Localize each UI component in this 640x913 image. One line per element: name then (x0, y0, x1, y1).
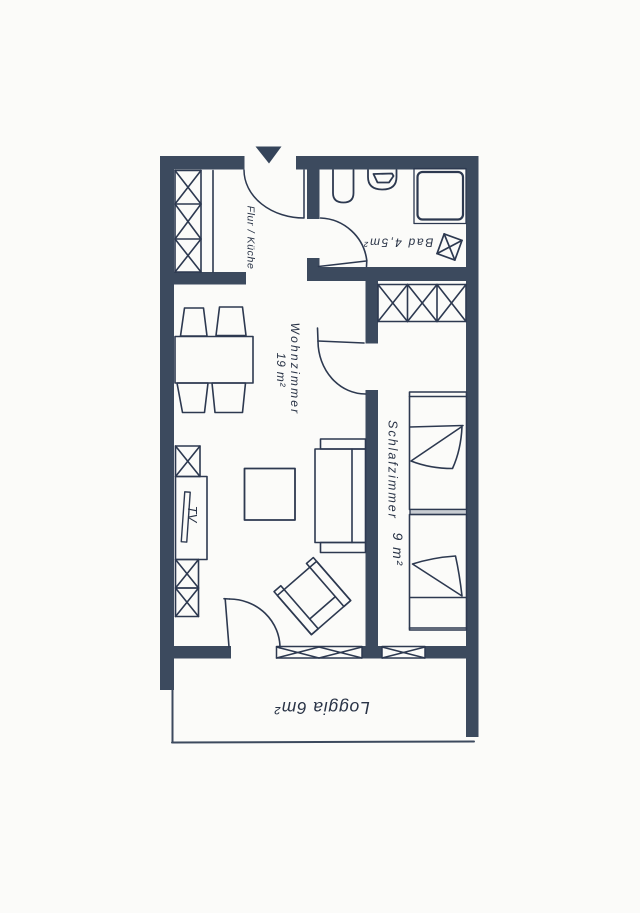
svg-text:19 m²: 19 m² (274, 353, 288, 388)
svg-text:Flur / Küche: Flur / Küche (245, 206, 257, 270)
svg-text:Schlafzimmer: Schlafzimmer (386, 420, 400, 520)
svg-text:Wohnzimmer: Wohnzimmer (288, 323, 302, 416)
svg-text:TV: TV (185, 506, 200, 524)
svg-text:Loggia 6m²: Loggia 6m² (274, 698, 370, 718)
svg-text:9 m²: 9 m² (390, 533, 406, 567)
svg-text:Bad 4,5m²: Bad 4,5m² (363, 236, 434, 250)
